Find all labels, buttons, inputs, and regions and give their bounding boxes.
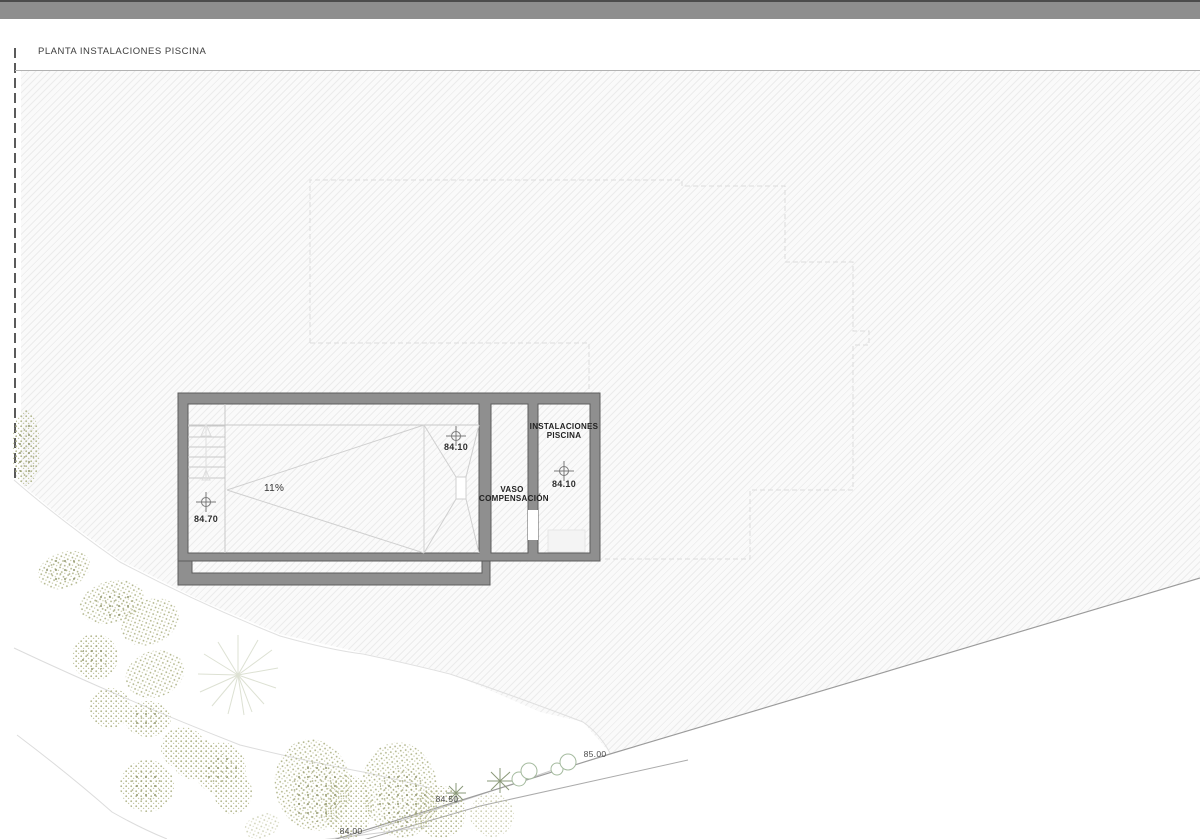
benchmark-icon [196, 492, 216, 512]
overflow-channel-wall [178, 561, 490, 585]
contour-label-85: 85.00 [578, 749, 612, 759]
level-label-shallow-end: 84.70 [186, 514, 226, 524]
contour-label-84-00: 84.00 [334, 826, 368, 836]
garden-white-area [14, 478, 1200, 839]
plant-room-equipment [548, 530, 585, 552]
deep-end-sump [456, 477, 466, 499]
pool-interior-lines [188, 404, 585, 553]
room-label-plant-room: INSTALACIONES PISCINA [529, 423, 599, 440]
level-label-plant-room: 84.10 [544, 479, 584, 489]
room-label-surge-tank: VASO COMPENSACIÓN [479, 486, 545, 503]
door-opening [528, 510, 538, 540]
steps-direction-arrow [201, 424, 211, 480]
level-label-deep-end: 84.10 [436, 442, 476, 452]
plan-drawing [0, 0, 1200, 839]
slope-label: 11% [264, 483, 284, 494]
benchmark-icon [554, 461, 574, 481]
contour-label-84-50: 84.50 [430, 794, 464, 804]
